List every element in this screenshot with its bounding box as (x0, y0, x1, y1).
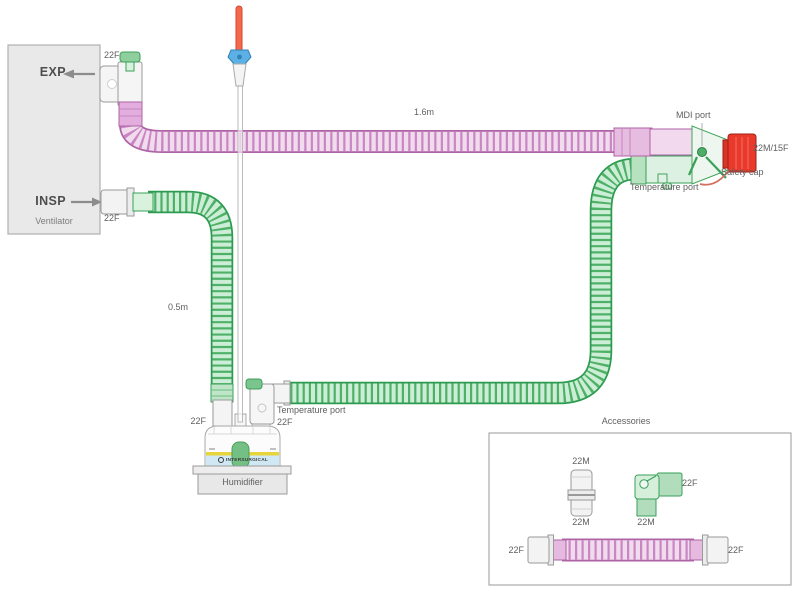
diagram-graphics (0, 0, 800, 600)
accessories-title: Accessories (556, 417, 696, 427)
adapter-bottom-size-label: 22M (561, 518, 601, 528)
ventilator-label: Ventilator (10, 217, 98, 227)
humidifier-label: Humidifier (198, 478, 287, 488)
wye-green-cuff (631, 154, 646, 184)
wye-green-limb (645, 156, 693, 183)
adapter-top-size-label: 22M (561, 457, 601, 467)
catheter-left-size-label: 22F (498, 546, 524, 556)
insp-port-size-label: 22F (104, 214, 120, 224)
patient-limb-tube (284, 169, 643, 393)
insp-limb-tube (148, 202, 222, 392)
elbow-male-size-label: 22M (626, 518, 666, 528)
mdi-port-label: MDI port (676, 111, 711, 121)
elbow-female-size-label: 22F (682, 479, 698, 489)
exp-tube-cuff (119, 102, 142, 126)
insp-port-connector (101, 188, 153, 216)
wye-temperature-port-label: Temperature port (630, 183, 699, 193)
insp-limb-length-label: 0.5m (168, 303, 188, 313)
inlet-size-label: 22F (180, 417, 206, 427)
humidifier-brand: INTERSURGICAL (207, 457, 279, 463)
accessory-catheter-tube (528, 535, 728, 565)
exp-limb-length-label: 1.6m (404, 108, 444, 118)
wye-pink-limb (650, 129, 692, 155)
catheter-right-size-label: 22F (728, 546, 744, 556)
probe-cable (238, 84, 243, 422)
exp-port-elbow (100, 52, 142, 126)
exp-limb-tube (131, 118, 619, 142)
accessory-straight-adapter (568, 470, 595, 516)
wye-assembly (614, 123, 756, 189)
outlet-temperature-port-label: Temperature port (277, 406, 346, 416)
chamber-float (232, 442, 249, 468)
insp-label: INSP (20, 195, 66, 209)
outlet-temp-port-cap-icon (246, 379, 262, 389)
breathing-circuit-diagram: EXP INSP Ventilator 22F 22F 1.6m 0.5m MD… (0, 0, 800, 600)
exp-label: EXP (26, 66, 66, 80)
accessory-elbow-adapter (635, 473, 682, 516)
humidifier-inlet-port (211, 384, 233, 426)
probe-tip (236, 6, 242, 53)
patient-connector-size-label: 22M/15F (753, 144, 789, 154)
outlet-size-label: 22F (277, 418, 293, 428)
mdi-port-nub-icon (698, 148, 707, 157)
wye-pink-cuff (614, 128, 652, 156)
exp-port-size-label: 22F (104, 51, 120, 61)
exp-elbow-port-cap-icon (120, 52, 140, 62)
safety-cap-label: Safety cap (721, 168, 764, 178)
brand-logo-icon (218, 457, 224, 463)
